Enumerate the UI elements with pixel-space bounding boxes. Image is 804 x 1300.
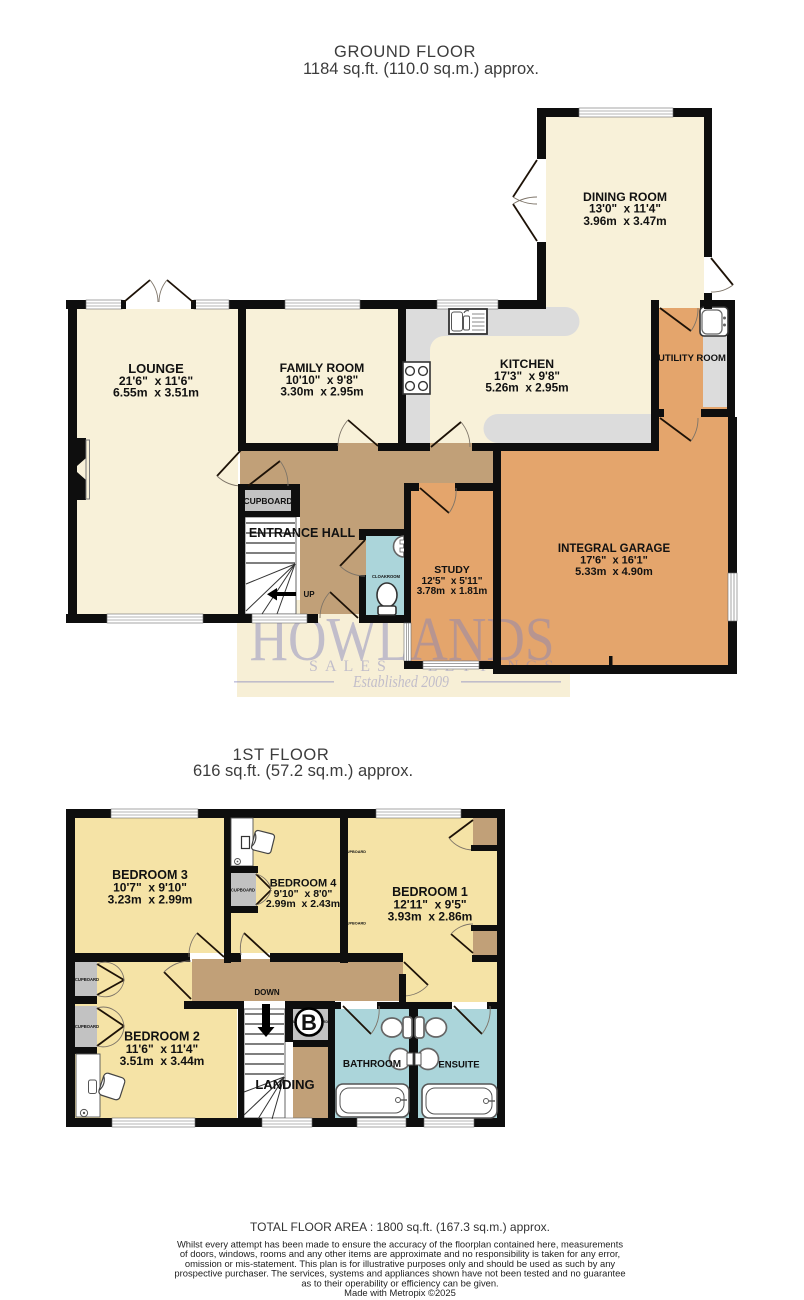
- svg-text:BATHROOM: BATHROOM: [343, 1059, 401, 1070]
- svg-text:STUDY: STUDY: [434, 564, 470, 576]
- svg-text:3.30m x 2.95m: 3.30m x 2.95m: [280, 385, 363, 399]
- svg-text:UTILITY ROOM: UTILITY ROOM: [658, 353, 726, 364]
- svg-text:CUPBOARD: CUPBOARD: [231, 888, 255, 893]
- svg-text:CUPBOARD: CUPBOARD: [344, 922, 366, 926]
- svg-text:LANDING: LANDING: [255, 1077, 314, 1092]
- svg-text:CUPBOARD: CUPBOARD: [344, 850, 366, 854]
- svg-text:Established 2009: Established 2009: [352, 672, 449, 691]
- svg-text:616 sq.ft. (57.2 sq.m.) approx: 616 sq.ft. (57.2 sq.m.) approx.: [193, 762, 413, 780]
- svg-text:CUPBOARD: CUPBOARD: [243, 496, 292, 506]
- svg-text:ENTRANCE HALL: ENTRANCE HALL: [249, 526, 356, 540]
- svg-text:3.51m x 3.44m: 3.51m x 3.44m: [120, 1054, 205, 1068]
- svg-text:3.78m x 1.81m: 3.78m x 1.81m: [417, 586, 488, 597]
- svg-text:17'6" x 16'1": 17'6" x 16'1": [580, 555, 648, 567]
- svg-text:1184 sq.ft. (110.0 sq.m.) appr: 1184 sq.ft. (110.0 sq.m.) approx.: [303, 60, 539, 78]
- svg-text:5.26m x 2.95m: 5.26m x 2.95m: [485, 381, 568, 395]
- svg-text:3.93m x 2.86m: 3.93m x 2.86m: [388, 910, 473, 924]
- svg-text:ENSUITE: ENSUITE: [438, 1060, 479, 1071]
- svg-text:CLOAKROOM: CLOAKROOM: [372, 574, 400, 579]
- svg-text:TOTAL FLOOR AREA : 1800 sq.ft.: TOTAL FLOOR AREA : 1800 sq.ft. (167.3 sq…: [250, 1220, 550, 1234]
- svg-text:DOWN: DOWN: [254, 988, 280, 997]
- svg-text:Made with Metropix ©2025: Made with Metropix ©2025: [344, 1287, 456, 1298]
- svg-text:3.23m x 2.99m: 3.23m x 2.99m: [108, 893, 193, 907]
- svg-text:6.55m x 3.51m: 6.55m x 3.51m: [113, 386, 199, 400]
- svg-text:5.33m x 4.90m: 5.33m x 4.90m: [575, 566, 653, 578]
- svg-text:B: B: [301, 1010, 317, 1035]
- svg-text:INTEGRAL GARAGE: INTEGRAL GARAGE: [558, 543, 671, 555]
- svg-text:GROUND FLOOR: GROUND FLOOR: [334, 43, 476, 61]
- svg-text:3.96m x 3.47m: 3.96m x 3.47m: [583, 214, 666, 228]
- svg-text:UP: UP: [303, 590, 315, 599]
- svg-text:2.99m x 2.43m: 2.99m x 2.43m: [266, 898, 340, 910]
- svg-text:CUPBOARD: CUPBOARD: [75, 1024, 99, 1029]
- svg-text:CUPBOARD: CUPBOARD: [75, 977, 99, 982]
